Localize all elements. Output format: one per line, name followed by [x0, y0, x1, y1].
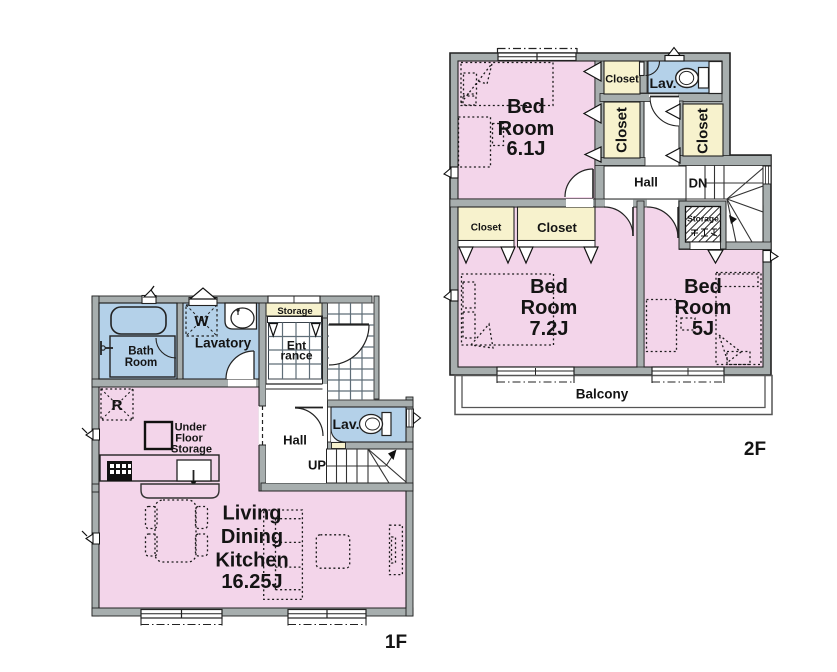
svg-text:16.25J: 16.25J [221, 571, 282, 593]
svg-text:7.2J: 7.2J [530, 318, 569, 340]
svg-text:Room: Room [675, 297, 732, 319]
svg-text:1F: 1F [385, 632, 407, 653]
svg-text:Room: Room [498, 118, 555, 140]
svg-text:UP: UP [308, 458, 326, 473]
svg-text:Lavatory: Lavatory [195, 336, 252, 351]
svg-text:Bed: Bed [684, 276, 722, 298]
svg-text:Hall: Hall [283, 433, 307, 448]
svg-text:Bed: Bed [507, 96, 545, 118]
svg-text:Kitchen: Kitchen [215, 550, 288, 572]
svg-text:Closet: Closet [471, 223, 502, 234]
svg-text:DN: DN [689, 176, 708, 191]
svg-text:Closet: Closet [614, 107, 631, 153]
svg-text:Storage: Storage [171, 444, 212, 456]
svg-text:Hall: Hall [634, 175, 658, 190]
svg-text:2F: 2F [744, 439, 766, 460]
svg-text:Lav.: Lav. [650, 75, 677, 91]
svg-text:Storage: Storage [687, 214, 719, 224]
svg-text:rance: rance [280, 349, 312, 363]
svg-text:Room: Room [125, 357, 158, 369]
svg-text:Living: Living [223, 503, 282, 525]
svg-text:Closet: Closet [537, 220, 577, 235]
svg-text:6.1J: 6.1J [507, 138, 546, 160]
svg-text:Closet: Closet [695, 108, 712, 154]
svg-text:Room: Room [521, 297, 578, 319]
svg-text:W: W [194, 313, 209, 330]
svg-text:R: R [112, 397, 123, 414]
svg-text:Lav.: Lav. [333, 416, 360, 432]
svg-text:Balcony: Balcony [576, 387, 629, 402]
svg-text:5J: 5J [692, 318, 714, 340]
svg-text:Bath: Bath [128, 346, 154, 358]
svg-text:Closet: Closet [605, 74, 639, 86]
svg-text:Bed: Bed [530, 276, 568, 298]
svg-text:Dining: Dining [221, 526, 283, 548]
svg-text:Storage: Storage [277, 306, 312, 317]
